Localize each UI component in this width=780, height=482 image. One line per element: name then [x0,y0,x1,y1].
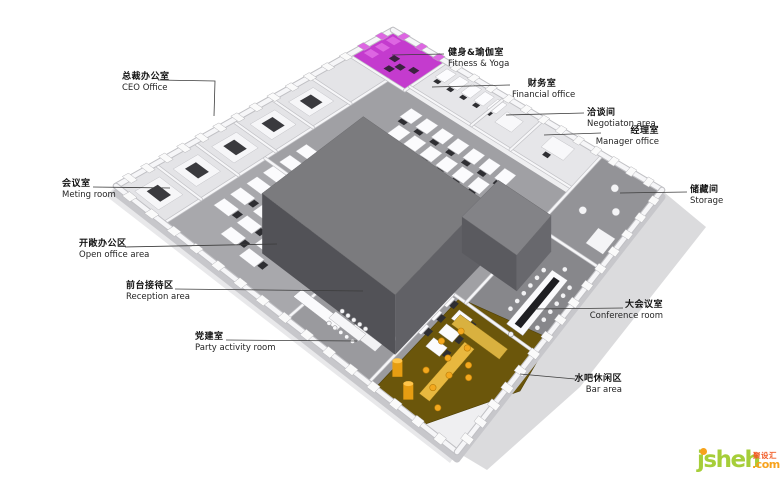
callout-party-activity-room-zh: 党建室 [195,332,276,343]
callout-open-office-area-en: Open office area [79,250,149,261]
callout-manager-office-en: Manager office [596,137,659,148]
callout-bar-area-en: Bar area [574,385,622,396]
callout-ceo-office-en: CEO Office [122,83,170,94]
callout-conference-room: 大会议室 Conference room [590,300,663,322]
callout-negotiation-area-zh: 洽谈间 [587,108,656,119]
callout-financial-office-zh: 财务室 [512,79,572,90]
callout-financial-office: 财务室 Financial office [512,79,572,101]
callout-conference-room-en: Conference room [590,311,663,322]
callout-party-activity-room: 党建室 Party activity room [195,332,276,354]
callout-fitness-yoga-en: Fitness & Yoga [448,59,509,70]
callout-reception-area-en: Reception area [126,292,190,303]
callout-open-office-area-zh: 开敞办公区 [79,239,149,250]
callout-manager-office: 经理室 Manager office [596,126,659,148]
watermark-logo: jsheh 聚设汇 .com [697,445,780,481]
callout-open-office-area: 开敞办公区 Open office area [79,239,149,261]
watermark-dot-icon [700,448,707,455]
callout-conference-room-zh: 大会议室 [590,300,663,311]
callout-meeting-room-zh: 会议室 [62,179,116,190]
callout-bar-area: 水吧休闲区 Bar area [574,374,622,396]
callout-ceo-office-zh: 总裁办公室 [122,72,170,83]
callout-fitness-yoga: 健身&瑜伽室 Fitness & Yoga [448,48,509,70]
callout-storage-zh: 储藏间 [690,185,723,196]
callout-meeting-room: 会议室 Meting room [62,179,116,201]
callout-reception-area: 前台接待区 Reception area [126,281,190,303]
office-floorplan-screenshot: 总裁办公室 CEO Office 健身&瑜伽室 Fitness & Yoga 财… [0,0,780,482]
callout-financial-office-en: Financial office [512,90,572,101]
callout-bar-area-zh: 水吧休闲区 [574,374,622,385]
callout-party-activity-room-en: Party activity room [195,343,276,354]
callout-manager-office-zh: 经理室 [596,126,659,137]
callout-reception-area-zh: 前台接待区 [126,281,190,292]
callout-ceo-office: 总裁办公室 CEO Office [122,72,170,94]
callout-storage: 储藏间 Storage [690,185,723,207]
watermark-tld-text: .com [752,458,780,471]
callout-fitness-yoga-zh: 健身&瑜伽室 [448,48,509,59]
callout-storage-en: Storage [690,196,723,207]
callout-meeting-room-en: Meting room [62,190,116,201]
